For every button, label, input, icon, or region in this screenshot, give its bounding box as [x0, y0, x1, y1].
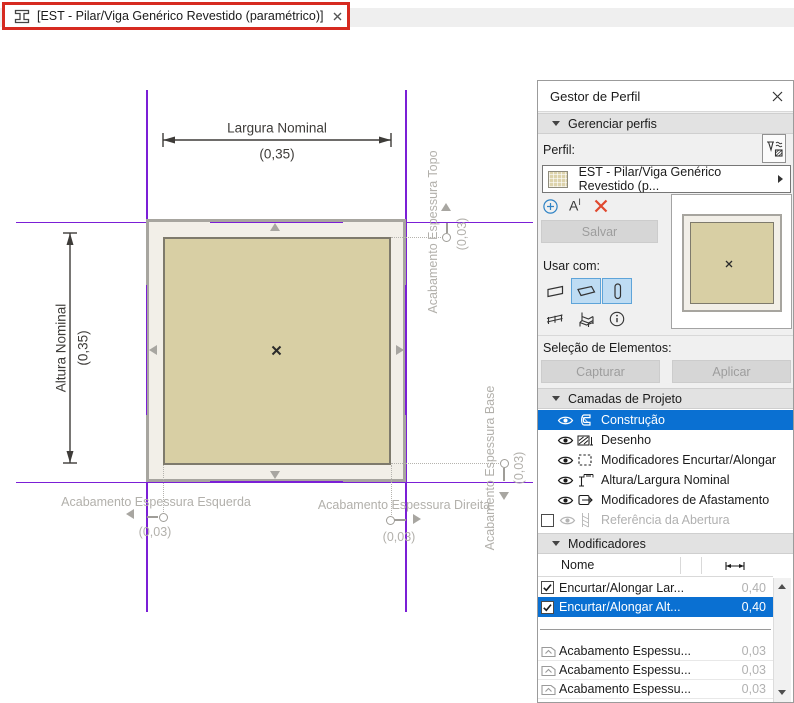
collapse-caret-icon	[552, 121, 560, 126]
visibility-eye-icon[interactable]	[557, 475, 574, 486]
layer-label: Referência da Abertura	[601, 513, 730, 527]
layer-nominal-dimension-icon	[577, 472, 594, 488]
section-manage-profiles[interactable]: Gerenciar perfis	[538, 113, 793, 134]
rename-profile-button[interactable]: AI	[569, 197, 581, 214]
profile-swatch	[548, 171, 568, 188]
layers-list: Construção Desenho Modificadores Encurta…	[538, 409, 793, 533]
tab-close-icon[interactable]	[333, 12, 342, 21]
table-scrollbar[interactable]	[773, 578, 791, 702]
finish-base-stem	[503, 468, 505, 481]
modifier-value: 0,03	[706, 682, 766, 696]
finish-top-value: (0,03)	[455, 218, 469, 251]
modifier-checkbox[interactable]	[541, 581, 554, 594]
use-with-label: Usar com:	[543, 259, 600, 273]
preview-origin-cross	[725, 260, 733, 268]
profile-editor-tab[interactable]: [EST - Pilar/Viga Genérico Revestido (pa…	[4, 3, 348, 29]
finish-top-arrow[interactable]	[441, 203, 451, 211]
use-with-column-toggle[interactable]	[602, 278, 632, 304]
profile-editor-canvas: Largura Nominal (0,35) Altura Nominal	[0, 31, 537, 703]
finish-left-stem	[147, 516, 158, 518]
modifiers-table: Nome Encurtar/Alongar Lar... 0,40 Encurt…	[538, 554, 793, 702]
layer-stretch-modifier-icon	[577, 453, 593, 467]
dropdown-arrow-icon	[778, 175, 783, 183]
guide-overlay-left	[146, 285, 148, 415]
modifier-name: Encurtar/Alongar Alt...	[559, 600, 681, 614]
layer-row-referencia-abertura[interactable]: Referência da Abertura	[538, 510, 793, 530]
section-project-layers[interactable]: Camadas de Projeto	[538, 388, 793, 409]
scroll-down-icon[interactable]	[778, 690, 786, 695]
finish-base-label: Acabamento Espessura Base	[483, 386, 497, 551]
modifier-name: Acabamento Espessu...	[559, 644, 691, 658]
rename-glyph: A	[569, 198, 578, 214]
origin-cross[interactable]	[271, 345, 282, 356]
offset-modifier-icon	[541, 663, 556, 677]
stretch-arrow-left[interactable]	[149, 345, 157, 355]
layer-label: Altura/Largura Nominal	[601, 473, 730, 487]
tab-title: [EST - Pilar/Viga Genérico Revestido (pa…	[37, 9, 323, 23]
modifier-name: Acabamento Espessu...	[559, 663, 691, 677]
layer-row-afastamento[interactable]: Modificadores de Afastamento	[538, 490, 793, 510]
section-modifiers-label: Modificadores	[568, 537, 646, 551]
visibility-eye-icon[interactable]	[557, 415, 574, 426]
layer-label: Desenho	[601, 433, 651, 447]
finish-top-label: Acabamento Espessura Topo	[426, 150, 440, 313]
section-modifiers[interactable]: Modificadores	[538, 533, 793, 554]
apply-button[interactable]: Aplicar	[672, 360, 791, 383]
layer-row-construcao[interactable]: Construção	[538, 410, 793, 430]
height-dimension-value: (0,35)	[76, 330, 91, 365]
modifier-row-finish-3[interactable]: Acabamento Espessu... 0,03	[538, 679, 773, 699]
profile-field-label: Perfil:	[543, 143, 575, 157]
visibility-eye-icon[interactable]	[557, 455, 574, 466]
profile-dropdown[interactable]: EST - Pilar/Viga Genérico Revestido (p..…	[542, 165, 791, 193]
layer-label: Construção	[601, 413, 665, 427]
modifier-row-finish-2[interactable]: Acabamento Espessu... 0,03	[538, 660, 773, 680]
finish-base-arrow[interactable]	[499, 492, 509, 500]
width-dimension-value: (0,35)	[259, 147, 294, 162]
offset-modifier-icon	[541, 682, 556, 696]
layer-construction-icon	[577, 412, 593, 428]
modifier-value: 0,03	[706, 663, 766, 677]
modifier-row-finish-1[interactable]: Acabamento Espessu... 0,03	[538, 641, 773, 661]
capture-button[interactable]: Capturar	[541, 360, 660, 383]
column-name-header: Nome	[561, 558, 594, 572]
section-manage-label: Gerenciar perfis	[568, 117, 657, 131]
stretch-arrow-right[interactable]	[396, 345, 404, 355]
panel-close-icon[interactable]	[772, 91, 783, 102]
guide-overlay-right	[405, 285, 407, 415]
stretch-arrow-bottom[interactable]	[270, 471, 280, 479]
finish-left-label: Acabamento Espessura Esquerda	[61, 495, 251, 509]
rename-sup-glyph: I	[578, 197, 581, 207]
use-with-railing-toggle[interactable]	[540, 306, 570, 332]
use-with-beam-toggle[interactable]	[571, 278, 601, 304]
new-profile-button[interactable]	[543, 199, 558, 214]
layer-row-altura-largura[interactable]: Altura/Largura Nominal	[538, 470, 793, 490]
finish-left-arrow[interactable]	[126, 509, 134, 519]
finish-top-stem	[446, 223, 448, 233]
delete-profile-button[interactable]	[594, 199, 608, 213]
layer-opening-reference-icon	[579, 512, 592, 528]
column-divider	[680, 557, 681, 574]
use-with-info-icon[interactable]	[602, 306, 632, 332]
modifier-row-stretch-height[interactable]: Encurtar/Alongar Alt... 0,40	[538, 597, 773, 617]
finish-right-stem	[394, 519, 406, 521]
visibility-eye-icon[interactable]	[559, 515, 576, 526]
profile-picker-icon	[766, 140, 783, 158]
profile-dropdown-value: EST - Pilar/Viga Genérico Revestido (p..…	[579, 165, 778, 193]
finish-right-arrow[interactable]	[413, 514, 421, 524]
layer-label: Modificadores de Afastamento	[601, 493, 769, 507]
modifier-name: Encurtar/Alongar Lar...	[559, 581, 684, 595]
modifiers-table-header: Nome	[538, 555, 773, 577]
stretch-arrow-top[interactable]	[270, 223, 280, 231]
use-with-object-toggle[interactable]	[571, 306, 601, 332]
panel-title: Gestor de Perfil	[550, 89, 640, 104]
modifier-row-stretch-width[interactable]: Encurtar/Alongar Lar... 0,40	[538, 578, 773, 597]
modifier-value: 0,40	[706, 581, 766, 595]
panel-divider	[538, 335, 793, 336]
layer-row-encurtar-alongar[interactable]: Modificadores Encurtar/Alongar	[538, 450, 793, 470]
modifier-value: 0,03	[706, 644, 766, 658]
profile-manager-panel: Gestor de Perfil Gerenciar perfis Perfil…	[537, 80, 794, 703]
profile-picker-button[interactable]	[762, 134, 786, 163]
collapse-caret-icon	[552, 396, 560, 401]
profile-preview	[671, 194, 792, 329]
scroll-up-icon[interactable]	[778, 584, 786, 589]
section-layers-label: Camadas de Projeto	[568, 392, 682, 406]
modifier-value: 0,40	[706, 600, 766, 614]
finish-base-handle[interactable]	[500, 459, 509, 468]
finish-left-value: (0,03)	[139, 525, 172, 539]
layer-offset-modifier-icon	[577, 493, 593, 507]
finish-top-handle[interactable]	[442, 233, 451, 242]
column-dimension-icon	[724, 561, 746, 571]
panel-title-bar: Gestor de Perfil	[538, 81, 793, 112]
guide-overlay-bottom	[210, 481, 343, 483]
layer-label: Modificadores Encurtar/Alongar	[601, 453, 776, 467]
element-selection-label: Seleção de Elementos:	[543, 341, 672, 355]
collapse-caret-icon	[552, 541, 560, 546]
offset-modifier-icon	[541, 644, 556, 658]
modifier-name: Acabamento Espessu...	[559, 682, 691, 696]
column-divider	[701, 557, 702, 574]
layer-row-desenho[interactable]: Desenho	[538, 430, 793, 450]
layer-drawing-icon	[577, 433, 594, 448]
table-group-separator	[540, 629, 771, 630]
visibility-eye-icon[interactable]	[557, 495, 574, 506]
finish-base-value: (0,03)	[512, 452, 526, 485]
application-window: [EST - Pilar/Viga Genérico Revestido (pa…	[0, 0, 794, 703]
finish-left-handle[interactable]	[159, 513, 168, 522]
i-beam-icon	[13, 9, 31, 24]
finish-right-value: (0,03)	[383, 530, 416, 544]
save-button[interactable]: Salvar	[541, 220, 658, 243]
layer-checkbox[interactable]	[541, 514, 554, 527]
visibility-eye-icon[interactable]	[557, 435, 574, 446]
use-with-wall-toggle[interactable]	[540, 278, 570, 304]
finish-right-label: Acabamento Espessura Direita	[318, 498, 490, 512]
modifier-checkbox[interactable]	[541, 601, 554, 614]
